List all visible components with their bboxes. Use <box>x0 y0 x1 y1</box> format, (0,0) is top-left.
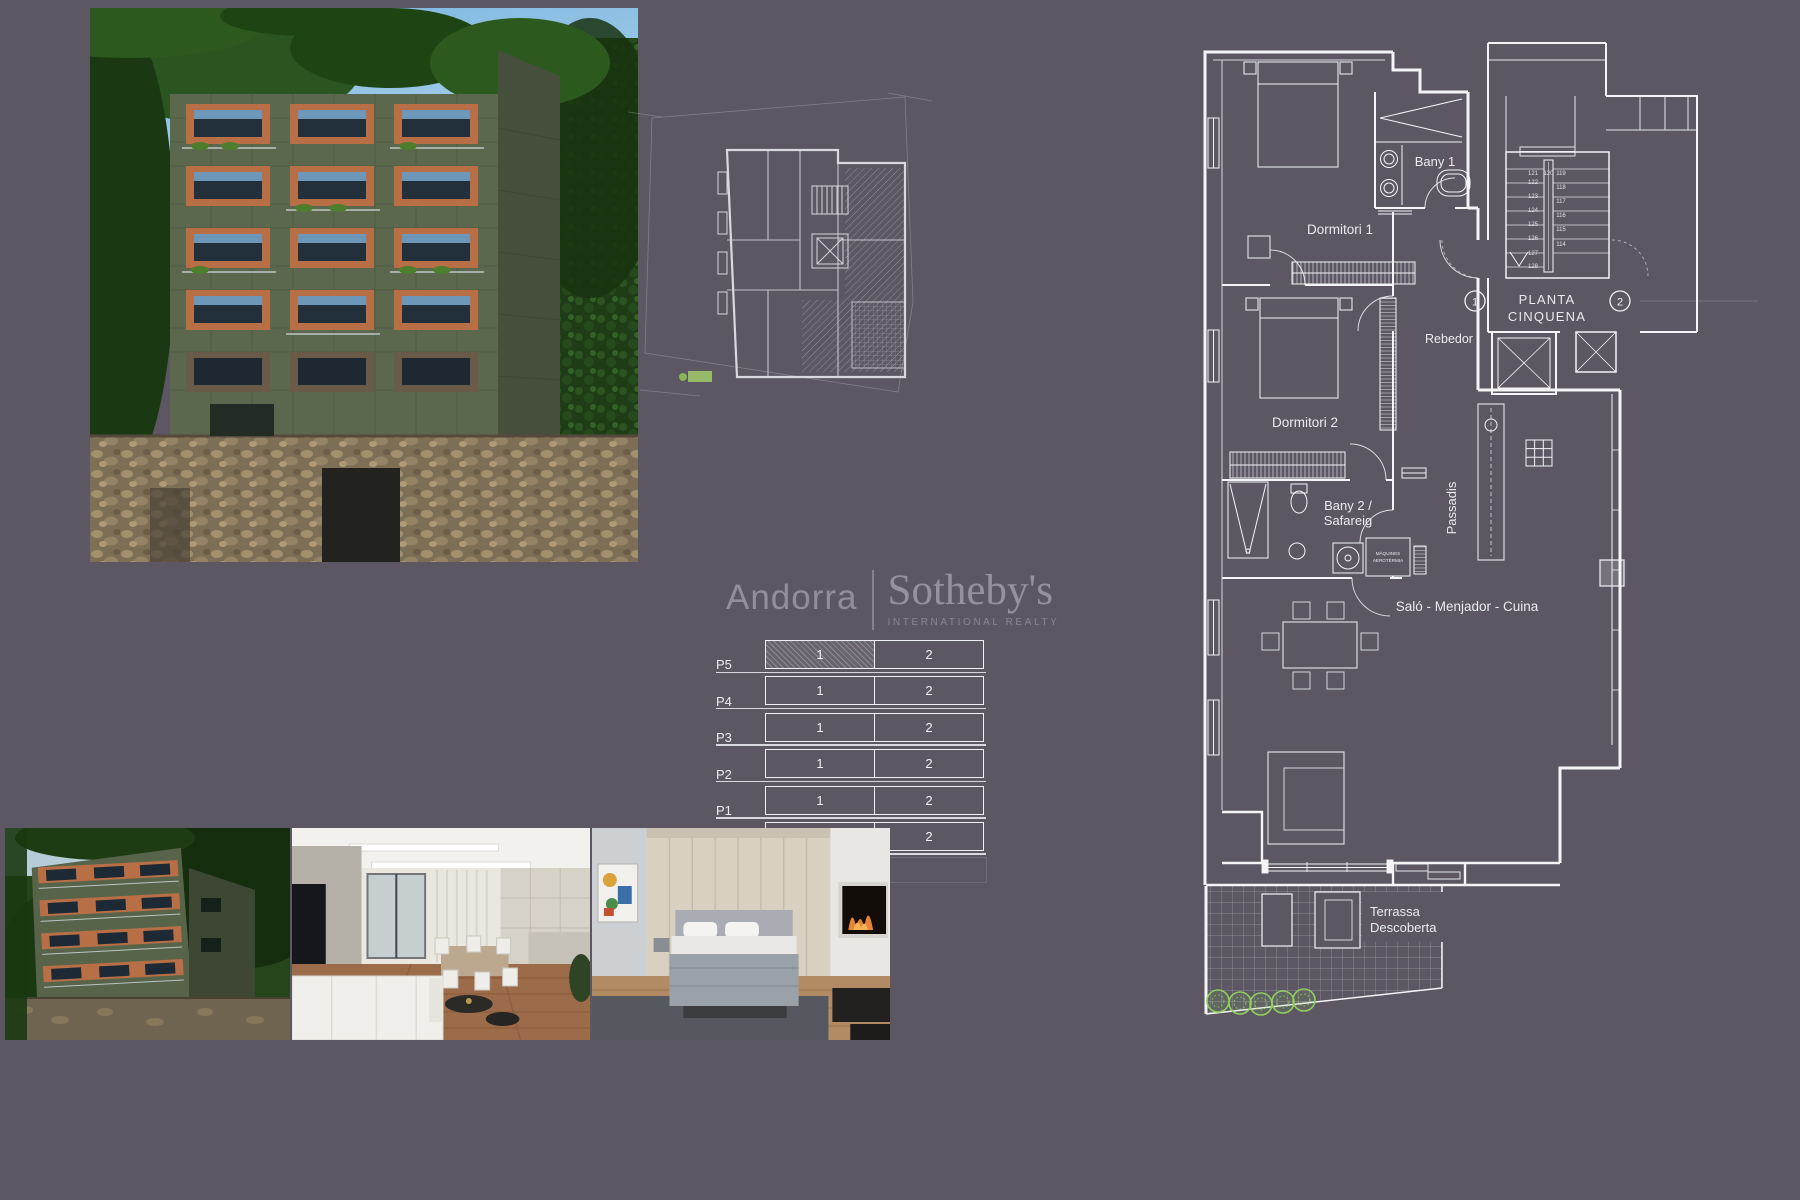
unit-cell: 1 <box>765 713 875 742</box>
living-room-art <box>292 828 590 1040</box>
svg-text:125: 125 <box>1528 222 1539 228</box>
row-underline <box>716 781 986 783</box>
svg-text:122: 122 <box>1528 180 1539 186</box>
bedroom-art <box>592 828 890 1040</box>
living-room-photo <box>292 828 590 1040</box>
svg-text:126: 126 <box>1528 236 1539 242</box>
svg-text:124: 124 <box>1528 208 1539 214</box>
svg-text:115: 115 <box>1556 227 1566 233</box>
units-per-floor-table: P5 1 2 P4 1 2 P3 1 2 P2 1 <box>716 640 986 858</box>
room-label-salo: Saló - Menjador - Cuina <box>1396 599 1539 614</box>
table-row: P4 1 2 <box>716 676 986 712</box>
svg-text:120: 120 <box>1543 171 1554 177</box>
table-row: P3 1 2 <box>716 713 986 749</box>
bedroom-photo <box>592 828 890 1040</box>
room-label-dormitori1: Dormitori 1 <box>1307 222 1373 237</box>
exterior-photo-art <box>5 828 290 1040</box>
room-label-dormitori2: Dormitori 2 <box>1272 415 1338 430</box>
svg-text:127: 127 <box>1528 251 1539 257</box>
room-label-terrassa2: Descoberta <box>1370 920 1437 935</box>
room-label-safareig: Safareig <box>1324 513 1372 528</box>
row-underline <box>716 708 986 710</box>
floor-label: P4 <box>716 694 732 709</box>
realty-name: Sotheby's <box>888 570 1060 612</box>
floor-label: P1 <box>716 803 732 818</box>
row-underline <box>716 817 986 819</box>
label-maquines2: AEROTÈRMIA <box>1373 557 1404 563</box>
table-row: P1 1 2 <box>716 786 986 822</box>
svg-text:116: 116 <box>1556 213 1566 219</box>
unit-cell: 1 <box>765 640 875 669</box>
brochure-page: Bany 1 Dormitori 1 Rebedor Dormitori 2 B… <box>0 0 1800 1200</box>
room-label-passadis: Passadis <box>1444 481 1459 534</box>
floor-label: P3 <box>716 730 732 745</box>
logo-divider <box>872 570 874 630</box>
unit-cell: 2 <box>875 713 984 742</box>
row-underline <box>716 672 986 674</box>
unit-cell: 1 <box>765 786 875 815</box>
svg-text:114: 114 <box>1556 242 1566 248</box>
exterior-photo <box>5 828 290 1040</box>
axis-marker-2: 2 <box>1617 297 1623 309</box>
room-label-rebedor: Rebedor <box>1425 332 1473 346</box>
plan-title-line1: PLANTA <box>1519 292 1576 307</box>
svg-text:118: 118 <box>1556 185 1566 191</box>
row-underline <box>716 744 986 746</box>
unit-cell: 1 <box>765 749 875 778</box>
unit-cell: 2 <box>875 822 984 851</box>
axis-marker-1: 1 <box>1472 297 1478 309</box>
unit-cell: 2 <box>875 676 984 705</box>
svg-text:128: 128 <box>1528 264 1539 270</box>
label-maquines1: MÀQUINES <box>1376 550 1401 556</box>
room-label-bany2: Bany 2 / <box>1324 498 1372 513</box>
unit-cell: 2 <box>875 749 984 778</box>
room-label-terrassa1: Terrassa <box>1370 904 1421 919</box>
svg-text:119: 119 <box>1556 171 1566 177</box>
stair-step-numbers: 121 122 123 124 125 126 127 128 120 119 … <box>1528 171 1566 270</box>
table-row: P5 1 2 <box>716 640 986 676</box>
table-row: P2 1 2 <box>716 749 986 785</box>
terrace-plants <box>1207 989 1315 1015</box>
svg-text:121: 121 <box>1528 171 1539 177</box>
floor-plan: Bany 1 Dormitori 1 Rebedor Dormitori 2 B… <box>1205 43 1758 1015</box>
site-plan <box>628 93 932 396</box>
brand-name: Andorra <box>726 577 858 619</box>
svg-text:123: 123 <box>1528 194 1539 200</box>
unit-cell: 1 <box>765 676 875 705</box>
floor-label: P5 <box>716 657 732 672</box>
floor-label: P2 <box>716 767 732 782</box>
unit-cell: 2 <box>875 786 984 815</box>
svg-text:117: 117 <box>1556 199 1566 205</box>
plan-title-line2: CINQUENA <box>1508 309 1586 324</box>
unit-cell: 2 <box>875 640 984 669</box>
room-label-bany1: Bany 1 <box>1415 154 1455 169</box>
realty-subtitle: INTERNATIONAL REALTY <box>888 617 1060 628</box>
brand-logo: Andorra Sotheby's INTERNATIONAL REALTY <box>726 570 1059 630</box>
